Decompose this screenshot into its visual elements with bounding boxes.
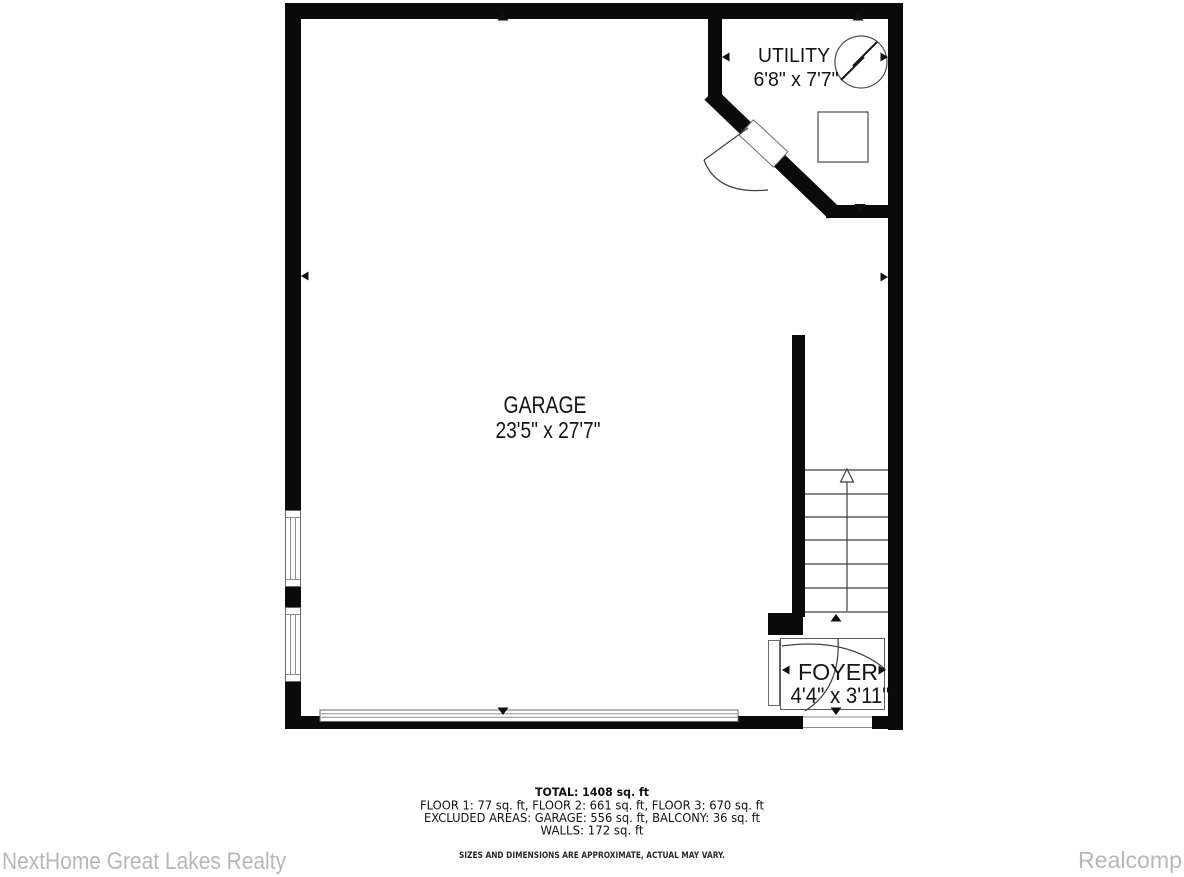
foyer-bottom-opening [803,717,872,729]
utility-door-opening [739,120,788,167]
floorplan-image: UTILITY 6'8" x 7'7" GARAGE 23'5" x 27'7" [0,0,1184,877]
garage-room-label: GARAGE [504,392,587,419]
marker-utility-left [722,53,730,62]
utility-room-dims: 6'8" x 7'7" [754,69,839,91]
watermark-left: NextHome Great Lakes Realty [2,848,286,875]
marker-foyer-top [831,614,842,622]
wall-foyer-corner [768,613,803,635]
watermark-right: Realcomp [1078,847,1182,873]
wall-utility-bottom [826,205,903,218]
garage-room-dims: 23'5" x 27'7" [496,417,601,443]
garage-room: GARAGE 23'5" x 27'7" [286,392,739,722]
wall-utility-left [708,19,722,96]
walls [285,3,903,730]
wall-bottom-foyer-left [772,716,803,729]
foyer-side-opening [769,641,780,706]
wall-left-upper [285,3,301,510]
wall-stairs [792,335,805,617]
area-summary: TOTAL: 1408 sq. ft FLOOR 1: 77 sq. ft, F… [420,785,764,861]
stairs [805,469,888,612]
utility-room-label: UTILITY [758,45,830,67]
utility-door-leaf [704,128,748,160]
total-area-text: TOTAL: 1408 sq. ft [535,785,649,799]
marker-garage-left [301,272,309,281]
marker-garage-right [881,273,889,282]
wall-bottom-foyer-right [872,716,903,729]
wall-top [285,3,903,19]
disclaimer-text: SIZES AND DIMENSIONS ARE APPROXIMATE, AC… [459,851,725,861]
electrical-panel-icon [835,36,887,88]
window-upper [286,511,301,587]
garage-door [320,710,738,722]
appliance-box [818,112,868,162]
walls-area-text: WALLS: 172 sq. ft [541,824,644,838]
wall-right [888,3,903,730]
window-lower [286,608,301,682]
marker-foyer-bottom [831,708,842,716]
marker-foyer-left [782,666,790,675]
stairs-up-arrow-head [841,469,854,482]
utility-door-swing-arc [704,160,768,191]
foyer-room-dims: 4'4" x 3'11" [791,683,890,708]
wall-left-between-windows [285,587,301,607]
foyer-room-label: FOYER [798,659,878,685]
foyer-room: FOYER 4'4" x 3'11" [769,638,890,729]
